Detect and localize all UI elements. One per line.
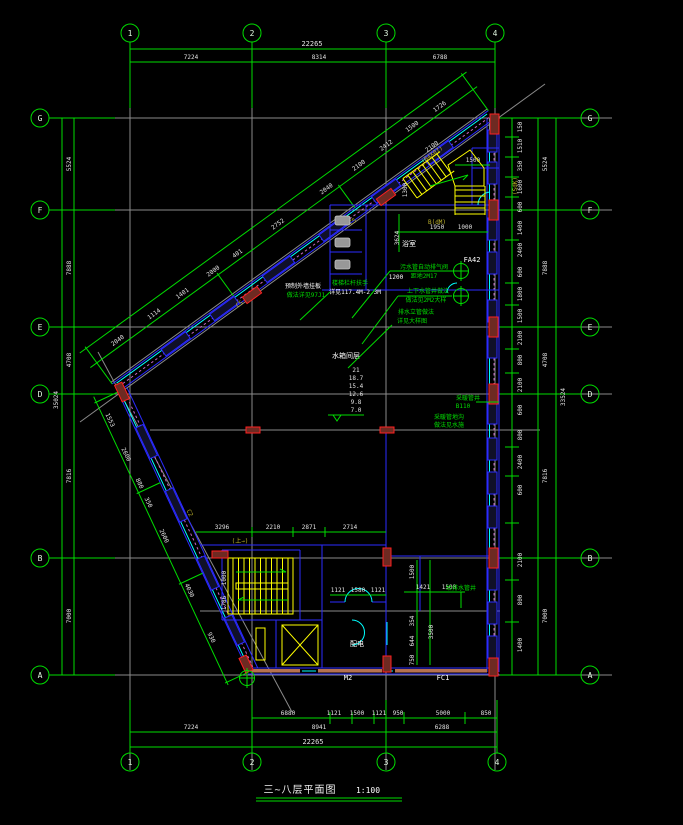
dim-top-seg: 6788: [433, 54, 448, 61]
dim-stair-block: 2714: [343, 524, 358, 531]
duct-shaft: [256, 628, 265, 660]
dim-bottom-seg: 8941: [312, 724, 327, 731]
dim-bottom-inner: 1500: [409, 564, 416, 579]
dim-right-fine: 600: [517, 484, 524, 495]
grid-row-label: A: [38, 671, 43, 680]
dim-diag-upper: 2752: [270, 217, 286, 231]
grid-row-label: F: [588, 206, 593, 215]
title-underline: [256, 798, 402, 801]
title-block: 三~八层平面图 1:100: [256, 784, 402, 801]
grid-col-label: 3: [384, 758, 389, 767]
dim-right-seg: 7000: [542, 608, 549, 623]
note-text: 做法见水施: [434, 421, 464, 429]
dim-diag-upper: 2412: [379, 138, 395, 152]
dim-right-fine: 600: [517, 266, 524, 277]
level-table: 水箱间层 21 18.7 15.4 12.6 9.8 7.0: [328, 351, 364, 421]
level-value: 7.0: [351, 407, 362, 414]
dim-right-fine: 800: [517, 594, 524, 605]
dim-right-fine: 2100: [517, 377, 524, 392]
dim-bottom-fine: 850: [481, 710, 492, 717]
dimensions-bottom: 6880 1121 1500 1121 950 5000 850 7224 89…: [130, 700, 497, 753]
dim-bottom-inner: 354: [409, 615, 416, 626]
grid-col-label: 1: [128, 29, 133, 38]
note-text: 给排水管井: [446, 584, 476, 592]
dim-diag-upper: 2040: [319, 182, 335, 196]
door-tag: FC1: [437, 674, 450, 682]
dim-diag-lower: 350: [143, 496, 154, 509]
dim-top-seg: 7224: [184, 54, 199, 61]
dim-bottom-seg: 7224: [184, 724, 199, 731]
grid-row-label: B: [38, 554, 43, 563]
grid-row-label: D: [38, 390, 43, 399]
grid-col-label: 4: [493, 29, 498, 38]
grid-col-label: 2: [250, 758, 255, 767]
dim-right-fine: 800: [517, 354, 524, 365]
construction-grid-lines: [58, 45, 612, 770]
grid-bubbles-left: G F E D B A: [31, 109, 115, 684]
upper-diagonal-wing: 2040 1114 1401 2000 401 2752 2040 2100 2…: [79, 70, 501, 400]
note-text: 污水管自动排气阀: [400, 263, 448, 271]
dim-bottom-inner: 1000: [221, 570, 228, 585]
dim-bottom-inner: 1580: [351, 587, 366, 594]
level-value: 21: [352, 367, 360, 374]
dim-bottom-inner: 750: [409, 654, 416, 665]
dimensions-left: 5524 7888 4708 7816 7000 35024: [53, 156, 73, 623]
dim-diag-upper: 1114: [146, 307, 162, 321]
dim-bottom-inner: 3500: [428, 624, 435, 639]
bath-tag: B(dM): [428, 219, 446, 226]
door-swing-arc: [478, 192, 490, 205]
door-tag: FA42: [464, 256, 481, 264]
grid-row-label: E: [588, 323, 593, 332]
grid-row-label: B: [588, 554, 593, 563]
dim-stair-block: 3296: [215, 524, 230, 531]
note-text: 详见大样图: [397, 317, 427, 325]
dim-right-fine: 2100: [517, 552, 524, 567]
level-value: 15.4: [349, 383, 364, 390]
dim-left-seg: 4708: [66, 352, 73, 367]
riser-symbol-icon: [239, 261, 469, 688]
note-dim: 1200: [389, 274, 404, 281]
grid-row-label: G: [588, 114, 593, 123]
toilet-fixture: [335, 238, 350, 247]
toilet-fixture: [335, 260, 350, 269]
dim-stair-block: 2871: [302, 524, 317, 531]
dim-bottom-inner: 1421: [416, 584, 431, 591]
dim-bottom-fine: 5000: [436, 710, 451, 717]
dim-right-fine: 1800: [517, 286, 524, 301]
dim-left-seg: 7816: [66, 468, 73, 483]
annotation-notes: 污水管自动排气阀 距地2M17 上下水管井做法 做法见2M2大样 排水立管做法 …: [239, 261, 499, 688]
room-label-bath: 浴室: [402, 239, 416, 248]
dim-left-seg: 7888: [66, 260, 73, 275]
dim-right-fine: 1510: [517, 138, 524, 153]
dim-froom: 1300: [402, 182, 409, 197]
dim-right-fine: 350: [517, 160, 524, 171]
dim-diag-upper: 1726: [432, 100, 448, 114]
dim-right-fine: 600: [517, 404, 524, 415]
note-text: 预制外墙挂板: [285, 282, 321, 290]
dim-diag-upper: 1500: [404, 120, 420, 134]
dim-right-seg: 7816: [542, 468, 549, 483]
dim-bottom-fine: 1500: [350, 710, 365, 717]
level-value: 12.6: [349, 391, 364, 398]
dim-froom: 1000: [458, 224, 473, 231]
dim-right-fine: 800: [517, 429, 524, 440]
grid-row-label: D: [588, 390, 593, 399]
dim-diag-upper: 1401: [175, 286, 191, 300]
dim-right-fine: 600: [517, 201, 524, 212]
dim-stair-block: 2210: [266, 524, 281, 531]
dim-diag-upper: 2040: [110, 333, 126, 347]
note-text: 距地2M17: [411, 272, 438, 280]
dim-right-seg: 7888: [542, 260, 549, 275]
floor-plan-canvas: 1 2 3 4 22265 7224 8314 6788 6880 1121 1…: [0, 0, 683, 825]
dim-left-total: 35024: [53, 391, 60, 409]
grid-row-label: A: [588, 671, 593, 680]
level-value: 9.8: [351, 399, 362, 406]
note-text: 上下水管井做法: [407, 287, 449, 295]
shaft-tag-label: (SdK): [512, 177, 519, 195]
grid-row-label: G: [38, 114, 43, 123]
dim-right-fine: 1400: [517, 220, 524, 235]
grid-col-label: 2: [250, 29, 255, 38]
double-door: [345, 589, 372, 646]
dim-right-seg: 5524: [542, 156, 549, 171]
lower-diagonal-wing: 1553 2600 880 350 2600 4030 930 C2: [92, 379, 265, 685]
dim-bottom-inner: 1121: [371, 587, 386, 594]
bottom-exterior-wall: [248, 668, 499, 674]
level-value: 18.7: [349, 375, 364, 382]
dim-top-total: 22265: [301, 40, 322, 48]
grid-col-label: 1: [128, 758, 133, 767]
dim-bottom-total: 22265: [302, 738, 323, 746]
room-label-power: 配电: [350, 639, 364, 648]
note-text: 做法见2M2大样: [406, 296, 447, 304]
dim-right-total: 33524: [560, 388, 567, 406]
dim-left-seg: 5524: [66, 156, 73, 171]
note-text: 采暖管地沟: [434, 413, 464, 421]
dim-right-fine: 1500: [517, 308, 524, 323]
dim-bottom-fine: 1121: [327, 710, 342, 717]
dim-froom: 3624: [394, 230, 401, 245]
level-table-title: 水箱间层: [332, 351, 360, 360]
dim-left-seg: 7000: [66, 608, 73, 623]
dim-right-fine: 2100: [517, 330, 524, 345]
dim-bottom-inner: 1121: [331, 587, 346, 594]
dim-right-fine: 1400: [517, 637, 524, 652]
dim-bottom-inner: 1786: [221, 595, 228, 610]
grid-row-label: E: [38, 323, 43, 332]
dimensions-top: 22265 7224 8314 6788: [130, 40, 495, 62]
bottom-block: 3296 2210 2871 2714 (上→) 1121 1580 1121 …: [196, 430, 499, 682]
grid-col-label: 3: [384, 29, 389, 38]
dim-diag-lower: 880: [134, 477, 145, 490]
note-text: B110: [456, 403, 471, 410]
door-tag: M2: [344, 674, 352, 682]
dim-bottom-seg: 6288: [435, 724, 450, 731]
dim-right-fine: 2400: [517, 242, 524, 257]
dim-bottom-fine: 1121: [372, 710, 387, 717]
note-text: 采暖管井: [456, 394, 480, 402]
note-text: 楼梯栏杆扶手: [332, 279, 368, 287]
dim-diag-lower: 930: [206, 631, 217, 644]
cad-floor-plan-view: 1 2 3 4 22265 7224 8314 6788 6880 1121 1…: [0, 0, 683, 825]
dim-bottom-fine: 6880: [281, 710, 296, 717]
dim-top-seg: 8314: [312, 54, 327, 61]
lower-stair: [228, 558, 293, 614]
grid-bubbles-bottom: 1 2 3 4: [121, 753, 506, 771]
drawing-title: 三~八层平面图: [263, 784, 336, 796]
level-marker-icon: [328, 415, 364, 421]
dimensions-right: 150 1510 350 1600 600 1400 2400 600 1800…: [512, 121, 567, 652]
note-text: 排水立管做法: [398, 308, 434, 316]
dim-right-fine: 2400: [517, 454, 524, 469]
dim-diag-upper: 401: [231, 248, 244, 260]
drawing-scale: 1:100: [356, 786, 380, 795]
grid-bubbles-top: 1 2 3 4: [121, 24, 504, 108]
dim-right-fine: 150: [517, 121, 524, 132]
dim-bottom-inner: 644: [409, 635, 416, 646]
toilet-fixture: [335, 216, 350, 225]
dim-bottom-fine: 950: [393, 710, 404, 717]
note-text: 做法详见97J1: [287, 291, 326, 299]
dim-right-seg: 4708: [542, 352, 549, 367]
dim-diag-upper: 2100: [351, 158, 367, 172]
up-direction-tag: (上→): [232, 537, 249, 545]
grid-col-label: 4: [495, 758, 500, 767]
grid-row-label: F: [38, 206, 43, 215]
elevator-shaft: [256, 620, 322, 668]
